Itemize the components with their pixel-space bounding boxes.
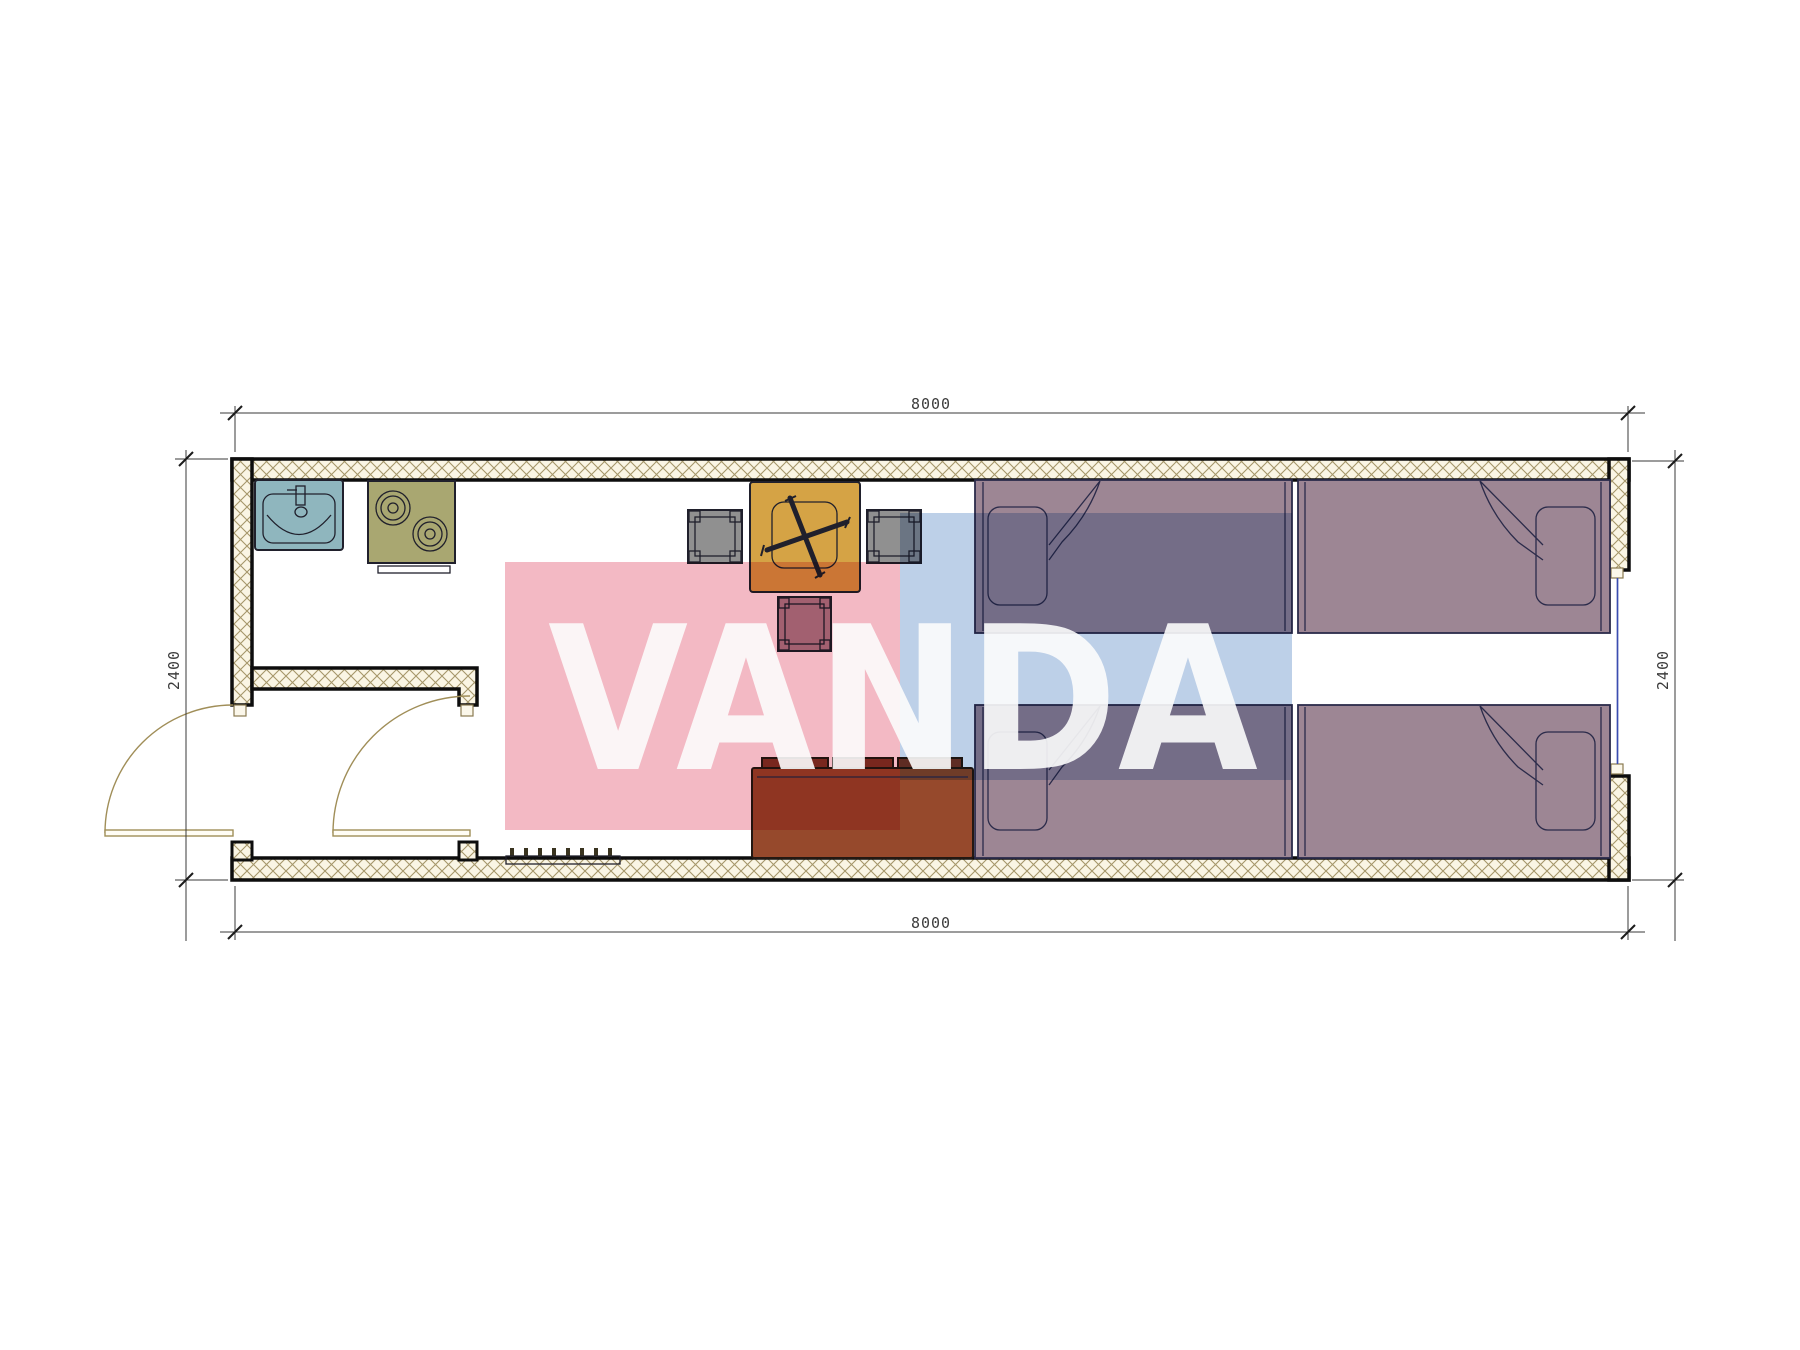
interior-door [333,696,473,836]
wall-right-lower [1609,776,1629,880]
dimension-top: 8000 [220,395,1645,452]
entry-door-jamb-tick [234,705,246,716]
stove-shelf [378,566,450,573]
dim-label-bottom: 8000 [911,914,951,932]
floor-plan-canvas: 8000 8000 2400 2400 VANDA [0,0,1800,1350]
dimension-left: 2400 [165,450,228,941]
entry-door-leaf [105,830,233,836]
wall-right-upper [1609,459,1629,570]
stool-seat [688,510,742,563]
bed-bottom-right [1298,705,1610,858]
entry-door [105,705,246,836]
entry-door-arc [105,705,233,833]
window-sill-bottom [1611,764,1623,774]
window-sill-top [1611,568,1623,578]
dim-label-right: 2400 [1654,650,1672,690]
bed-mattress [1298,705,1610,858]
partition-wall [252,668,477,705]
wall-left [232,459,252,705]
dimension-bottom: 8000 [220,886,1645,940]
interior-door-leaf [333,830,470,836]
interior-door-jamb-tick [461,705,473,716]
door-jamb-stub-left [232,842,252,860]
stool-left [688,510,742,563]
window [1611,568,1623,774]
stove [368,481,455,573]
interior-door-arc [333,696,470,833]
door-jamb-stub-inner [459,842,477,860]
kitchen-sink [255,480,343,550]
bed-top-right [1298,480,1610,633]
sink-body [255,480,343,550]
floor-plan-drawing: 8000 8000 2400 2400 VANDA [0,0,1800,1350]
wall-bottom [232,858,1629,880]
dim-label-top: 8000 [911,395,951,413]
dim-label-left: 2400 [165,650,183,690]
bed-mattress [1298,480,1610,633]
dimension-right: 2400 [1632,450,1684,941]
wall-top [232,459,1629,480]
watermark-text: VANDA [548,584,1258,817]
